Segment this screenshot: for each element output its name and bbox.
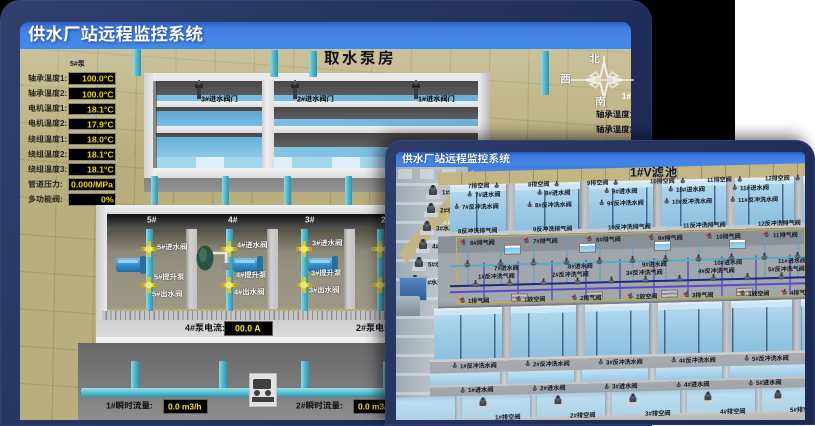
svg-text:8#: 8# (568, 264, 575, 270)
svg-text:0.000/MPa: 0.000/MPa (71, 180, 113, 190)
svg-text:12: 12 (758, 221, 765, 227)
svg-text:5#: 5# (790, 407, 797, 414)
svg-text:1#: 1# (460, 364, 467, 370)
svg-text:4#: 4# (237, 240, 245, 249)
svg-text:2:: 2: (60, 119, 67, 128)
svg-text:2#: 2# (297, 94, 305, 103)
svg-text:2: 2 (580, 296, 584, 302)
svg-text:17.9°C: 17.9°C (87, 119, 114, 129)
svg-text:10#: 10# (672, 199, 683, 205)
svg-text::: : (60, 195, 63, 204)
svg-text:1#: 1# (478, 275, 485, 281)
svg-text:3#: 3# (311, 268, 319, 277)
svg-text:1:: 1: (60, 104, 67, 113)
svg-text:9#: 9# (642, 262, 649, 268)
svg-text:11: 11 (707, 178, 714, 184)
svg-text:4#: 4# (720, 409, 727, 416)
svg-text:100.0°C: 100.0°C (82, 89, 114, 99)
svg-text::: : (60, 180, 63, 189)
svg-text:5#: 5# (147, 214, 157, 224)
svg-text:6#: 6# (470, 240, 477, 246)
svg-text:4: 4 (790, 290, 794, 296)
svg-text:3#: 3# (312, 238, 320, 247)
svg-text:9#: 9# (607, 201, 614, 207)
svg-text:2:: 2: (60, 150, 67, 159)
svg-text:18.1°C: 18.1°C (87, 149, 114, 159)
svg-text:2#: 2# (296, 400, 306, 410)
svg-text::: : (340, 400, 343, 410)
svg-text:11: 11 (683, 223, 690, 229)
svg-text::: : (150, 400, 153, 410)
svg-text:9#: 9# (612, 188, 619, 195)
svg-text:4#: 4# (228, 214, 238, 224)
svg-text:12: 12 (765, 176, 772, 182)
svg-text:2:: 2: (60, 89, 67, 98)
svg-text:3#: 3# (305, 214, 315, 224)
svg-text:11#: 11# (740, 185, 751, 192)
svg-text:8: 8 (458, 229, 462, 235)
svg-text:7#: 7# (494, 266, 501, 272)
svg-text:10: 10 (716, 234, 723, 240)
svg-text:4#: 4# (679, 358, 686, 364)
svg-text:1#: 1# (418, 94, 426, 103)
svg-text:4#: 4# (236, 270, 244, 279)
svg-text:4#: 4# (684, 382, 691, 389)
svg-text:8: 8 (528, 182, 532, 188)
svg-text:1:: 1: (630, 110, 631, 119)
svg-text:2#: 2# (570, 412, 577, 419)
svg-text:7#: 7# (475, 192, 482, 199)
svg-text:11#: 11# (738, 197, 748, 203)
svg-text:7#: 7# (533, 239, 540, 245)
svg-text:5#: 5# (152, 289, 160, 298)
svg-text:3#: 3# (612, 383, 619, 390)
svg-text:5#: 5# (157, 242, 165, 251)
svg-text:1#: 1# (106, 400, 116, 410)
svg-text:5#: 5# (752, 356, 759, 362)
svg-text:2: 2 (636, 294, 640, 300)
svg-text:9: 9 (533, 227, 537, 233)
svg-text:11: 11 (773, 233, 780, 239)
svg-text:1#: 1# (468, 387, 475, 394)
svg-text:2#: 2# (356, 322, 366, 332)
svg-text:7: 7 (468, 184, 472, 190)
svg-text:4#: 4# (234, 287, 242, 296)
svg-text:0.0 m3/h: 0.0 m3/h (168, 401, 202, 411)
svg-text:8#: 8# (535, 203, 542, 209)
svg-text:3: 3 (692, 293, 696, 299)
svg-text:100.0°C: 100.0°C (82, 74, 114, 84)
svg-text:5#: 5# (768, 267, 775, 273)
svg-text:11#: 11# (778, 258, 788, 264)
svg-text:1:: 1: (60, 134, 67, 143)
svg-text:10: 10 (608, 225, 615, 231)
svg-text:1: 1 (524, 297, 528, 303)
svg-text:18.1°C: 18.1°C (87, 165, 114, 175)
svg-text:5#: 5# (70, 61, 78, 68)
svg-text:1#: 1# (495, 414, 502, 420)
svg-text:0%: 0% (101, 195, 114, 205)
svg-text:3#: 3# (645, 411, 652, 418)
svg-text:2:: 2: (630, 125, 631, 134)
svg-text:3: 3 (748, 291, 752, 297)
svg-text:2#: 2# (533, 362, 540, 368)
svg-text:4#: 4# (698, 269, 705, 275)
svg-text:3#: 3# (626, 271, 633, 277)
svg-text:1:: 1: (60, 74, 67, 83)
svg-text:8#: 8# (545, 190, 552, 197)
svg-text:1#V: 1#V (630, 166, 653, 180)
svg-text:5#: 5# (756, 380, 763, 387)
svg-text:1: 1 (468, 298, 472, 304)
svg-text:2#: 2# (552, 273, 559, 279)
svg-text:3#: 3# (201, 94, 209, 103)
svg-text:10#: 10# (676, 187, 687, 194)
svg-text:9#: 9# (658, 236, 665, 242)
svg-text:9: 9 (587, 181, 591, 187)
svg-text:8#: 8# (596, 237, 603, 243)
svg-text:3#: 3# (309, 285, 317, 294)
svg-text:18.1°C: 18.1°C (87, 104, 114, 114)
svg-text:4#: 4# (185, 322, 195, 332)
svg-text:18.0°C: 18.0°C (87, 134, 114, 144)
svg-text:00.0 A: 00.0 A (235, 323, 261, 333)
svg-text:1#: 1# (622, 92, 631, 101)
svg-text:5#: 5# (154, 272, 162, 281)
svg-text:3:: 3: (60, 165, 67, 174)
svg-text:10#: 10# (714, 260, 725, 266)
svg-text:3#: 3# (606, 360, 613, 366)
svg-text:7#: 7# (462, 204, 469, 210)
svg-text:0.0 m3/: 0.0 m3/ (358, 401, 387, 411)
svg-text:2#: 2# (540, 385, 547, 392)
